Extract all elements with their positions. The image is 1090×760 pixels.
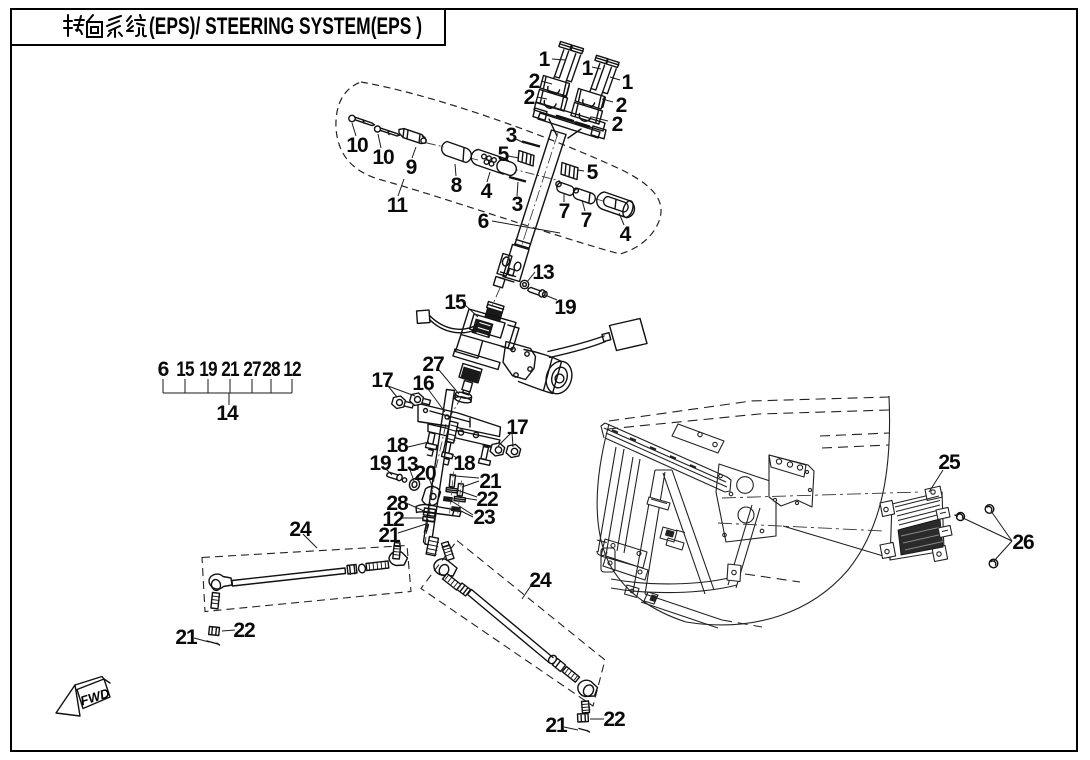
svg-text:4: 4 — [620, 223, 632, 246]
svg-text:10: 10 — [372, 146, 394, 169]
svg-text:24: 24 — [529, 569, 552, 592]
svg-text:1: 1 — [539, 48, 551, 71]
svg-text:20: 20 — [414, 462, 436, 485]
svg-text:5: 5 — [498, 143, 510, 166]
svg-text:4: 4 — [481, 180, 493, 203]
svg-text:15: 15 — [444, 291, 467, 314]
svg-text:8: 8 — [451, 174, 463, 197]
svg-text:12: 12 — [283, 358, 301, 381]
svg-text:7: 7 — [581, 209, 592, 232]
svg-text:7: 7 — [559, 200, 570, 223]
svg-text:19: 19 — [199, 358, 217, 381]
svg-text:24: 24 — [289, 518, 312, 541]
svg-text:15: 15 — [176, 358, 195, 381]
svg-text:6: 6 — [158, 358, 169, 381]
svg-text:10: 10 — [346, 134, 368, 157]
svg-text:21: 21 — [545, 714, 568, 737]
svg-text:14: 14 — [216, 402, 239, 425]
svg-text:21: 21 — [221, 358, 240, 381]
svg-text:2: 2 — [524, 86, 535, 109]
svg-text:16: 16 — [412, 372, 434, 395]
svg-text:25: 25 — [938, 451, 961, 474]
svg-text:19: 19 — [554, 296, 576, 319]
svg-text:1: 1 — [582, 57, 594, 80]
svg-text:3: 3 — [512, 193, 523, 216]
svg-text:13: 13 — [532, 261, 554, 284]
svg-text:6: 6 — [478, 210, 489, 233]
svg-text:28: 28 — [262, 358, 281, 381]
svg-text:18: 18 — [453, 452, 476, 475]
svg-text:11: 11 — [387, 194, 409, 217]
svg-text:18: 18 — [386, 434, 409, 457]
svg-text:1: 1 — [622, 71, 634, 94]
svg-text:9: 9 — [406, 156, 417, 179]
svg-text:5: 5 — [587, 161, 599, 184]
svg-text:23: 23 — [473, 506, 495, 529]
svg-text:2: 2 — [612, 113, 623, 136]
svg-text:22: 22 — [233, 619, 255, 642]
svg-text:27: 27 — [243, 358, 261, 381]
svg-text:(EPS)/ STEERING SYSTEM(EPS ): (EPS)/ STEERING SYSTEM(EPS ) — [149, 13, 422, 40]
svg-text:17: 17 — [506, 416, 528, 439]
svg-text:12: 12 — [382, 508, 404, 531]
svg-text:26: 26 — [1012, 531, 1034, 554]
svg-text:21: 21 — [175, 626, 198, 649]
svg-text:22: 22 — [603, 708, 625, 731]
